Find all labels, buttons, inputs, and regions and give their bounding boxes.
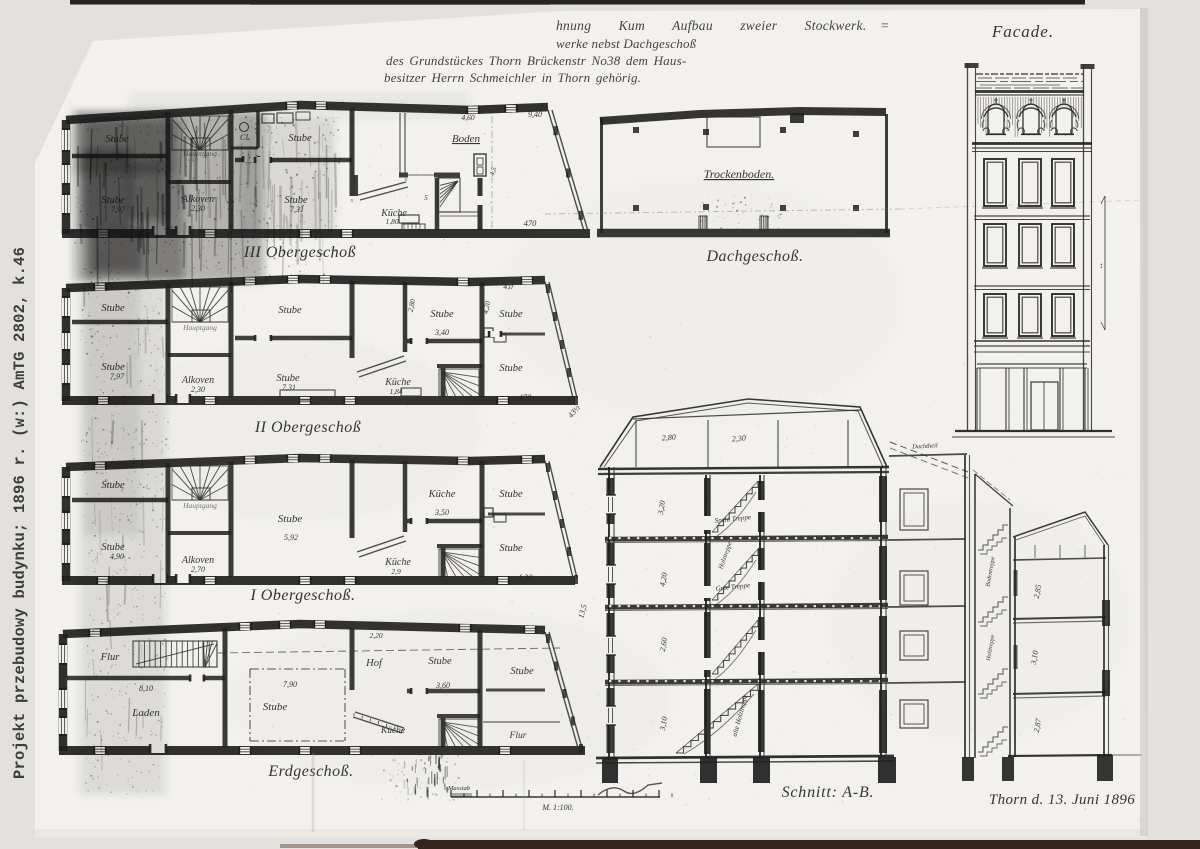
svg-text:werke nebst Dachgeschoß: werke nebst Dachgeschoß (556, 36, 697, 51)
svg-text:Hauptgang: Hauptgang (182, 323, 217, 332)
svg-text:x: x (430, 518, 434, 525)
svg-text:5: 5 (424, 194, 428, 202)
svg-text:M. 1:100.: M. 1:100. (541, 803, 573, 812)
svg-text:x: x (543, 458, 547, 465)
svg-text:2,80: 2,80 (662, 433, 677, 443)
svg-text:x: x (350, 519, 354, 526)
svg-text:x: x (350, 197, 354, 204)
svg-text:hnung Kum Aufbau zweier St: hnung Kum Aufbau zweier Stockwerk. = (556, 18, 890, 33)
svg-text:x: x (223, 677, 227, 684)
svg-text:x: x (481, 522, 485, 529)
svg-text:Stube: Stube (430, 309, 454, 320)
svg-text:Stube: Stube (499, 543, 523, 554)
svg-text:x: x (404, 176, 408, 183)
svg-text:2,70: 2,70 (191, 565, 205, 574)
svg-text:x: x (543, 107, 547, 114)
svg-text:x: x (481, 342, 485, 349)
svg-text:Schnitt: A-B.: Schnitt: A-B. (782, 784, 875, 801)
svg-text:Projekt przebudowy budynku; 18: Projekt przebudowy budynku; 1896 r. (w:)… (11, 247, 29, 779)
svg-text:Trockenboden.: Trockenboden. (704, 167, 775, 181)
svg-text:3,40: 3,40 (434, 328, 449, 337)
svg-text:x: x (430, 338, 434, 345)
svg-text:Stube: Stube (499, 363, 523, 374)
svg-text:des Grundstückes Thorn Brücken: des Grundstückes Thorn Brückenstr No38 d… (386, 53, 686, 68)
svg-text:Stube: Stube (499, 489, 523, 500)
svg-text:x: x (474, 227, 478, 234)
svg-text:3,50: 3,50 (434, 508, 449, 517)
svg-text:x: x (403, 282, 407, 289)
svg-text:Dachtheil: Dachtheil (911, 442, 938, 450)
svg-text:↔: ↔ (1098, 262, 1107, 270)
svg-text:Thorn d. 13. Juni 1896: Thorn d. 13. Juni 1896 (989, 792, 1135, 808)
svg-text:9,40: 9,40 (528, 110, 542, 119)
svg-text:Stube: Stube (278, 305, 302, 316)
svg-text:I Obergeschoß.: I Obergeschoß. (249, 587, 355, 604)
svg-text:Facade.: Facade. (991, 22, 1054, 41)
svg-text:Boden: Boden (452, 133, 481, 145)
svg-text:4,30: 4,30 (518, 572, 534, 582)
svg-text:besitzer Herrn Schmeichler in: besitzer Herrn Schmeichler in Thorn gehö… (384, 70, 641, 85)
svg-text:2,9: 2,9 (391, 567, 401, 576)
svg-text:2,30: 2,30 (732, 434, 747, 444)
svg-text:1,80: 1,80 (385, 217, 398, 226)
svg-text:5,92: 5,92 (284, 533, 298, 542)
svg-text:470: 470 (519, 392, 533, 402)
svg-text:470: 470 (524, 218, 538, 228)
